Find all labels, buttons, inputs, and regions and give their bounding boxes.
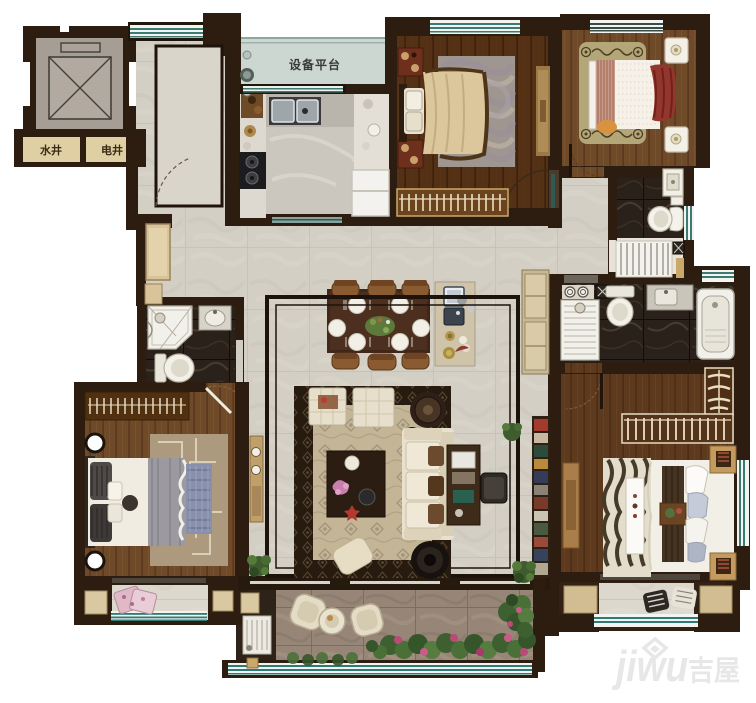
svg-text:电井: 电井	[101, 143, 123, 157]
svg-text:设备平台: 设备平台	[289, 57, 341, 72]
svg-text:jiwu: jiwu	[612, 642, 688, 691]
svg-text:吉屋: 吉屋	[688, 655, 740, 686]
svg-text:水井: 水井	[40, 143, 62, 157]
